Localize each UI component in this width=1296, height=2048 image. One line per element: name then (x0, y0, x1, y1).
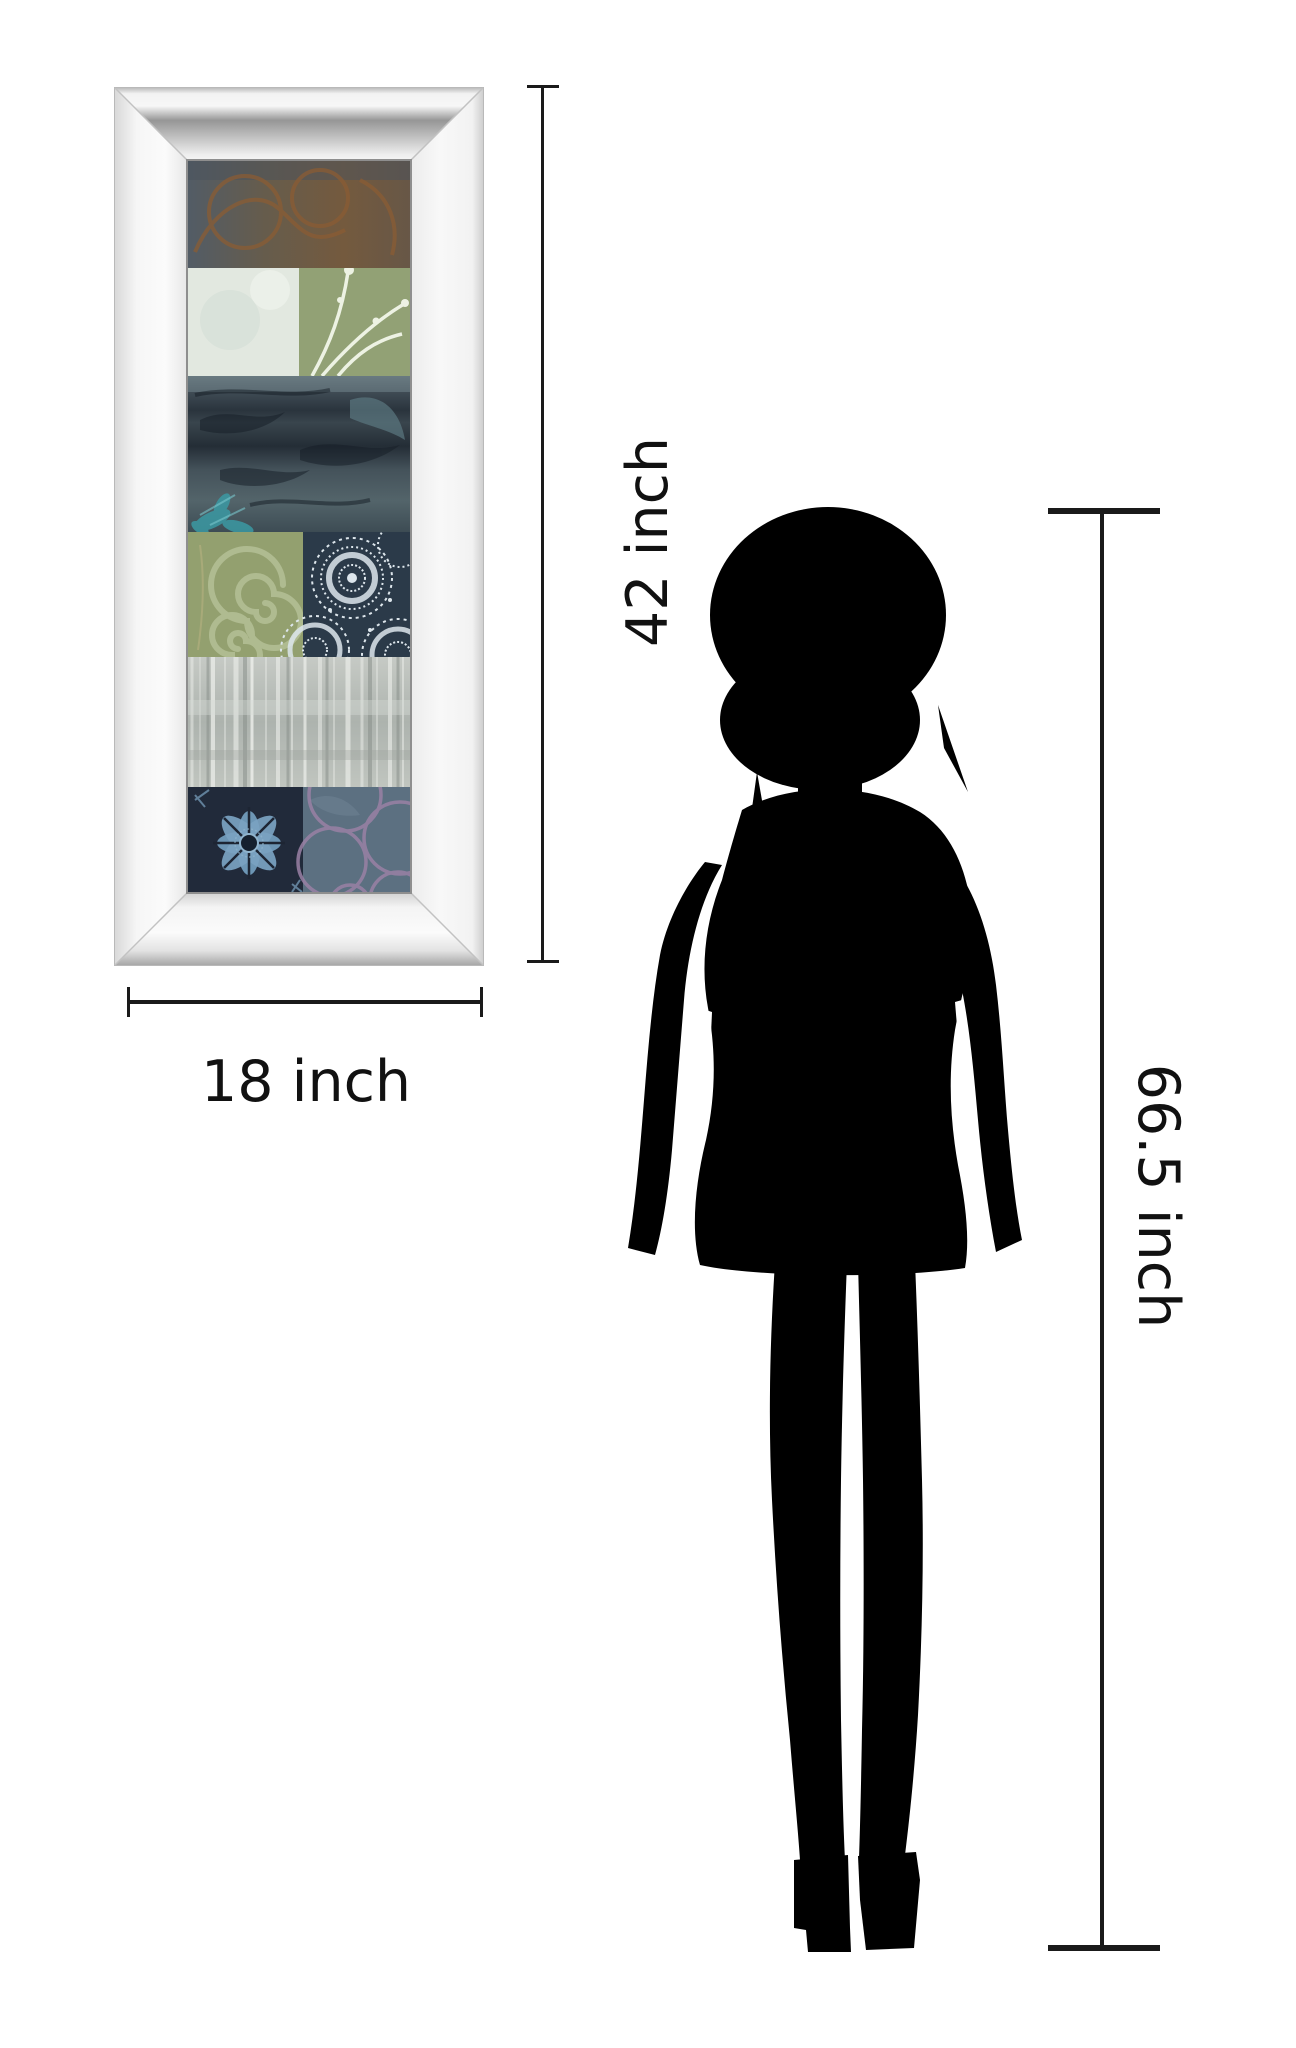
person-height-top-tick (1048, 508, 1160, 514)
person-height-bottom-tick (1048, 1945, 1160, 1951)
artwork-height-top-tick (527, 85, 559, 88)
person-height-label: 66.5 inch (1126, 1031, 1190, 1361)
art-section-teal-leaves (187, 376, 411, 538)
art-section-rust-swirls (187, 160, 411, 268)
artwork-height-dimension-line (541, 86, 544, 963)
person-height-dimension-line (1100, 511, 1104, 1951)
artwork-width-left-tick (127, 987, 130, 1017)
artwork-width-right-tick (480, 987, 483, 1017)
art-section-botanical (187, 265, 411, 376)
artwork-height-label: 42 inch (616, 392, 680, 692)
artwork-width-dimension-line (128, 1000, 483, 1004)
artwork-width-label: 18 inch (131, 1050, 481, 1114)
art-panel (187, 160, 436, 928)
artwork-height-bottom-tick (527, 960, 559, 963)
art-section-birch-texture (187, 657, 411, 787)
woman-silhouette-icon (628, 507, 1022, 1952)
size-comparison-diagram: 42 inch 18 inch 66.5 inch (0, 0, 1296, 2048)
